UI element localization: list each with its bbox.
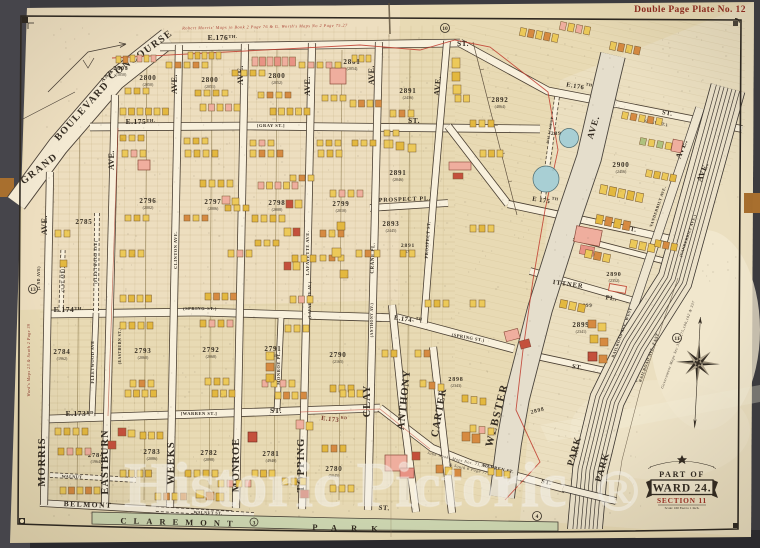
svg-text:R: R bbox=[605, 472, 631, 511]
svg-text:Double Page Plate No. 12: Double Page Plate No. 12 bbox=[634, 5, 746, 15]
svg-text:Historic Pictoric: Historic Pictoric bbox=[124, 450, 567, 520]
